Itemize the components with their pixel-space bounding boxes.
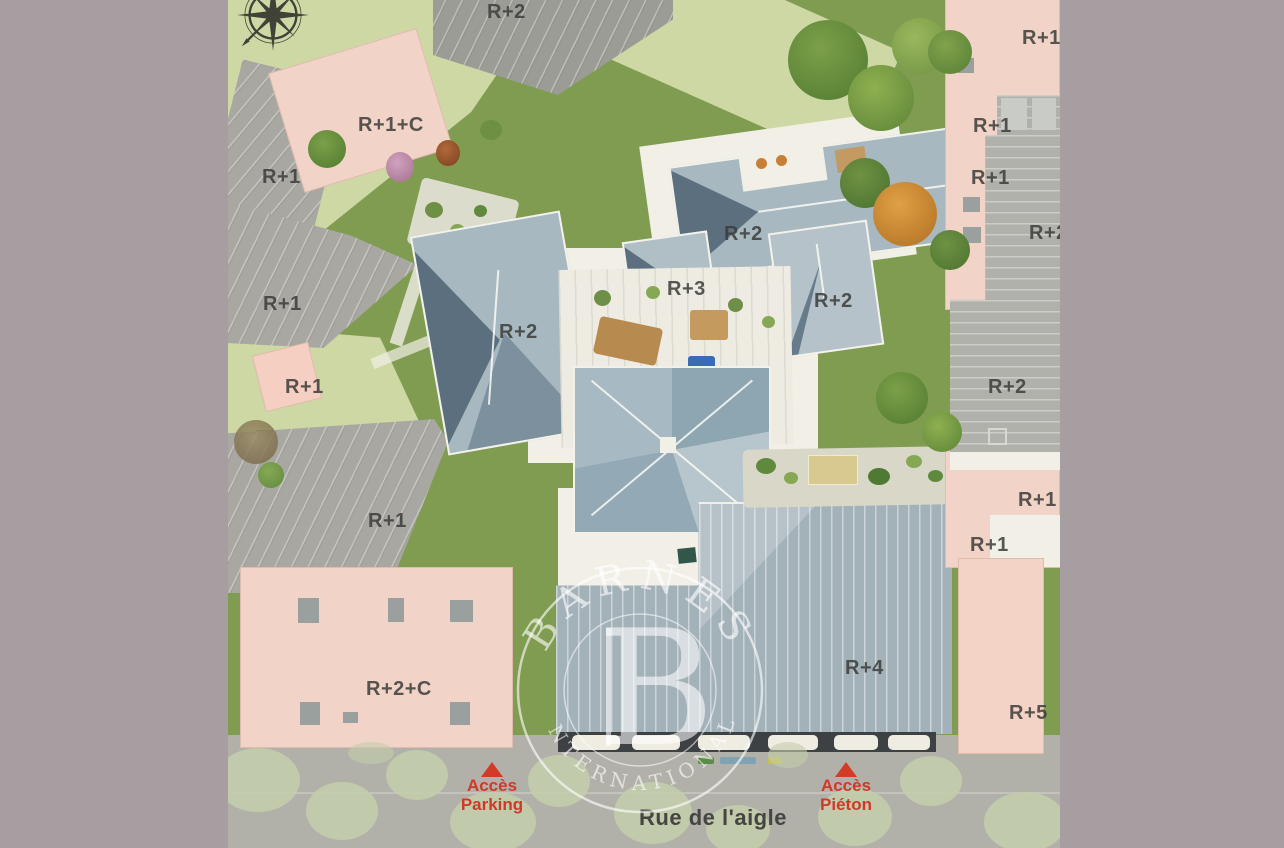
access-label-line2: Parking — [447, 796, 537, 815]
access-point: Accès Piéton — [801, 762, 891, 814]
access-marker-icon — [481, 762, 503, 777]
access-label-line2: Piéton — [801, 796, 891, 815]
access-label-line1: Accès — [801, 777, 891, 796]
access-marker-icon — [835, 762, 857, 777]
street-name: Rue de l'aigle — [639, 805, 787, 831]
site-plan: R+2 R+1+C R+1 R+1 R+1 R+2 R+3 R+2 R+2 R+… — [0, 0, 1284, 848]
access-label-line1: Accès — [447, 777, 537, 796]
mat-left — [0, 0, 228, 848]
access-point: Accès Parking — [447, 762, 537, 814]
mat-right — [1060, 0, 1284, 848]
